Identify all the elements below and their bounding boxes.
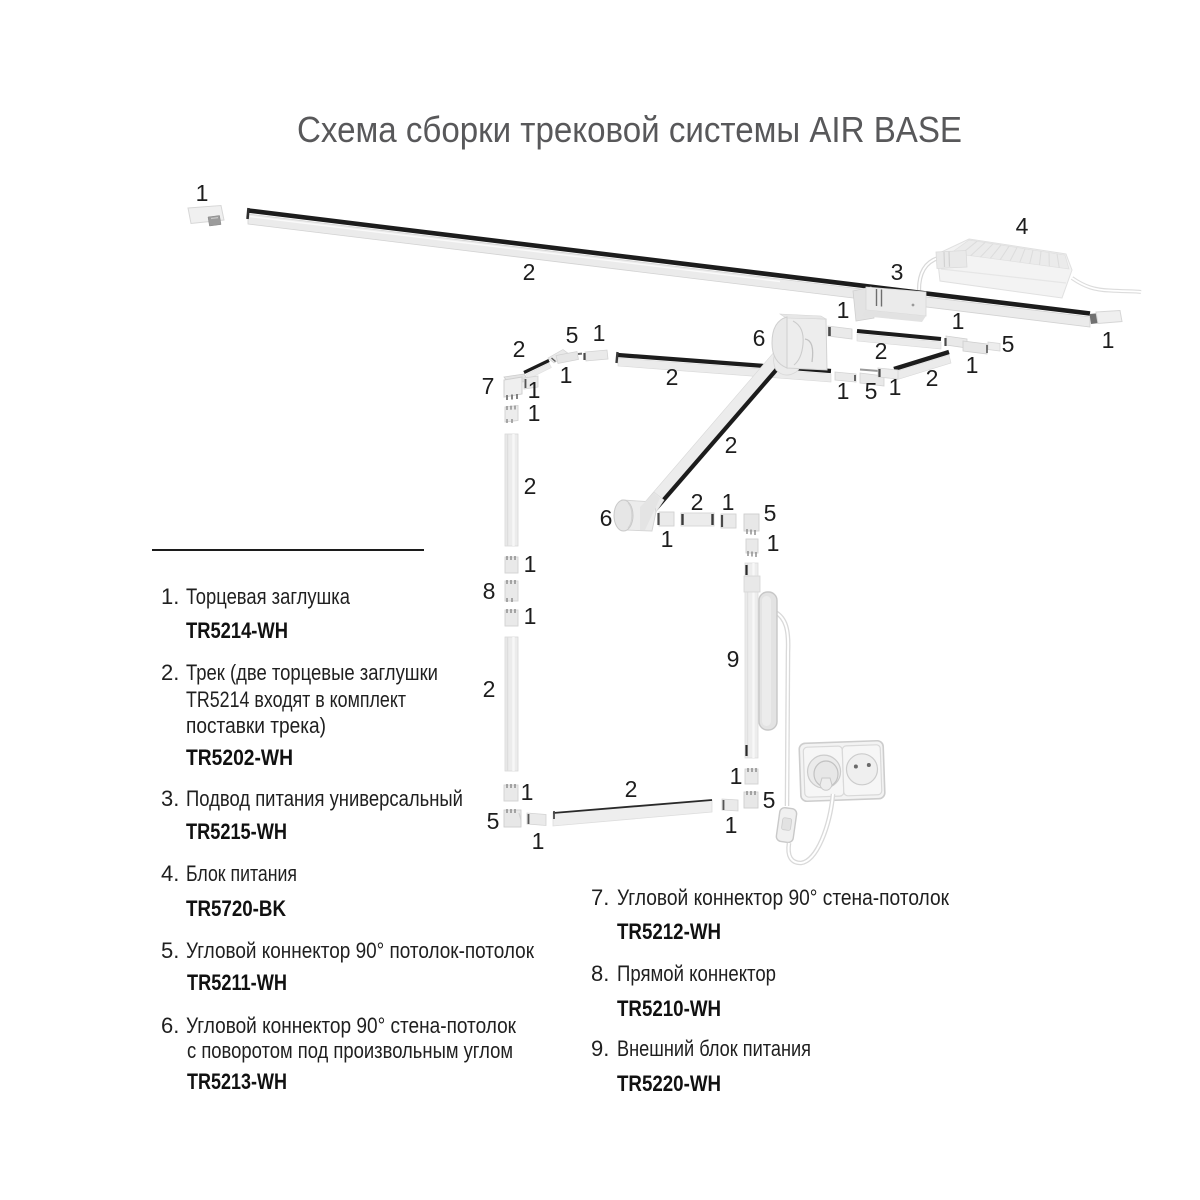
svg-text:с поворотом под произвольным у: с поворотом под произвольным углом [187, 1038, 513, 1063]
svg-text:7: 7 [482, 373, 495, 399]
svg-text:7.: 7. [591, 885, 609, 910]
svg-text:9.: 9. [591, 1036, 609, 1061]
svg-text:1: 1 [521, 779, 534, 805]
svg-text:3.: 3. [161, 786, 179, 811]
svg-text:1: 1 [837, 378, 850, 404]
svg-text:Прямой коннектор: Прямой коннектор [617, 961, 776, 986]
svg-text:Угловой коннектор 90° стена-по: Угловой коннектор 90° стена-потолок [186, 1013, 516, 1038]
svg-text:2.: 2. [161, 660, 179, 685]
svg-text:TR5720-BK: TR5720-BK [186, 896, 286, 921]
svg-text:TR5211-WH: TR5211-WH [187, 970, 287, 995]
svg-text:2: 2 [513, 336, 526, 362]
svg-text:1: 1 [196, 180, 209, 206]
svg-text:6.: 6. [161, 1013, 179, 1038]
svg-text:поставки трека): поставки трека) [186, 713, 326, 738]
svg-text:1: 1 [1102, 327, 1115, 353]
svg-text:1.: 1. [161, 584, 179, 609]
svg-text:2: 2 [625, 776, 638, 802]
svg-text:1: 1 [528, 400, 541, 426]
svg-text:1: 1 [730, 763, 743, 789]
svg-text:Угловой коннектор 90° потолок-: Угловой коннектор 90° потолок-потолок [186, 938, 534, 963]
svg-text:2: 2 [691, 489, 704, 515]
svg-text:1: 1 [524, 603, 537, 629]
svg-text:TR5213-WH: TR5213-WH [187, 1069, 287, 1094]
svg-text:1: 1 [560, 362, 573, 388]
svg-text:TR5215-WH: TR5215-WH [186, 819, 287, 844]
svg-text:Блок питания: Блок питания [186, 861, 297, 886]
svg-text:Внешний блок питания: Внешний блок питания [617, 1036, 811, 1061]
svg-text:1: 1 [725, 812, 738, 838]
svg-text:Трек (две торцевые заглушки: Трек (две торцевые заглушки [186, 660, 438, 685]
svg-text:5: 5 [487, 808, 500, 834]
svg-text:TR5220-WH: TR5220-WH [617, 1071, 721, 1096]
svg-text:1: 1 [722, 489, 735, 515]
svg-text:1: 1 [532, 828, 545, 854]
svg-text:6: 6 [753, 325, 766, 351]
svg-text:TR5202-WH: TR5202-WH [186, 745, 293, 770]
svg-text:1: 1 [661, 526, 674, 552]
svg-text:5.: 5. [161, 938, 179, 963]
svg-text:TR5214-WH: TR5214-WH [186, 618, 288, 643]
svg-text:5: 5 [865, 378, 878, 404]
svg-text:4: 4 [1016, 213, 1029, 239]
svg-text:1: 1 [593, 320, 606, 346]
svg-text:1: 1 [966, 352, 979, 378]
svg-text:2: 2 [524, 473, 537, 499]
svg-text:TR5210-WH: TR5210-WH [617, 996, 721, 1021]
svg-text:8.: 8. [591, 961, 609, 986]
svg-text:5: 5 [566, 322, 579, 348]
svg-text:TR5212-WH: TR5212-WH [617, 919, 721, 944]
svg-text:2: 2 [483, 676, 496, 702]
svg-text:9: 9 [727, 646, 740, 672]
svg-text:1: 1 [767, 530, 780, 556]
svg-text:Угловой коннектор 90° стена-по: Угловой коннектор 90° стена-потолок [617, 885, 949, 910]
svg-text:3: 3 [891, 259, 904, 285]
svg-text:1: 1 [524, 551, 537, 577]
svg-text:8: 8 [483, 578, 496, 604]
svg-text:2: 2 [725, 432, 738, 458]
svg-text:1: 1 [952, 308, 965, 334]
svg-text:2: 2 [523, 259, 536, 285]
svg-text:Схема сборки трековой системы: Схема сборки трековой системы AIR BASE [297, 109, 962, 150]
svg-text:2: 2 [875, 338, 888, 364]
svg-text:2: 2 [666, 364, 679, 390]
svg-text:1: 1 [889, 374, 902, 400]
svg-text:Подвод питания универсальный: Подвод питания универсальный [186, 786, 463, 811]
svg-text:5: 5 [764, 500, 777, 526]
svg-text:1: 1 [837, 297, 850, 323]
svg-text:2: 2 [926, 365, 939, 391]
svg-text:TR5214 входят в комплект: TR5214 входят в комплект [186, 687, 406, 712]
svg-text:5: 5 [1002, 331, 1015, 357]
svg-text:5: 5 [763, 787, 776, 813]
svg-text:6: 6 [600, 505, 613, 531]
svg-text:4.: 4. [161, 861, 179, 886]
svg-text:Торцевая заглушка: Торцевая заглушка [186, 584, 351, 609]
